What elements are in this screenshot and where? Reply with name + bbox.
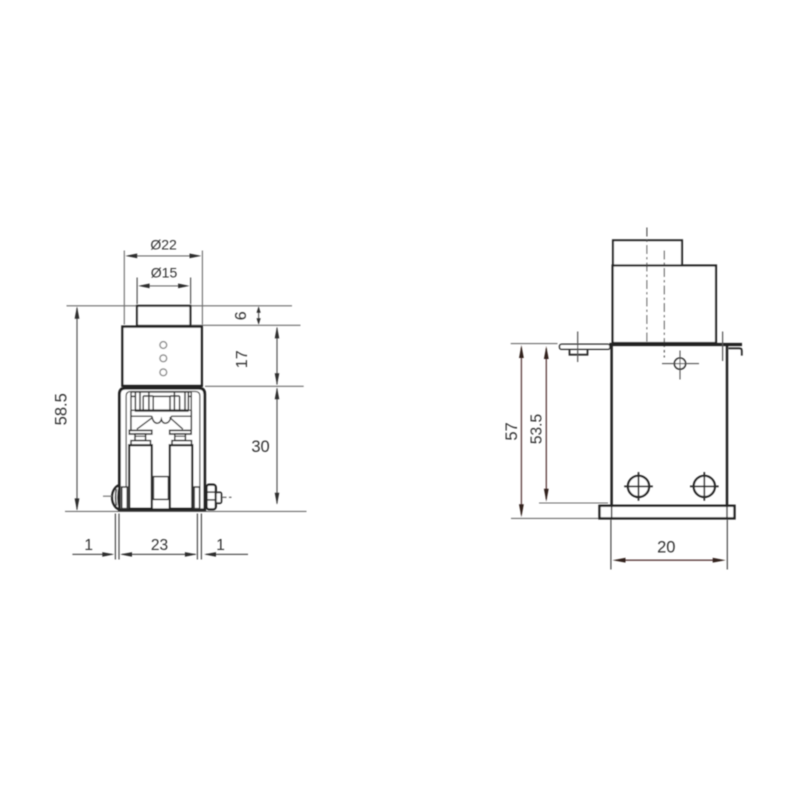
svg-text:1: 1: [216, 537, 225, 554]
svg-text:23: 23: [151, 537, 168, 554]
svg-text:Ø15: Ø15: [151, 265, 178, 281]
svg-text:Ø22: Ø22: [150, 236, 177, 252]
svg-text:1: 1: [84, 537, 93, 554]
svg-text:58.5: 58.5: [53, 393, 71, 425]
svg-text:17: 17: [234, 350, 251, 368]
svg-text:30: 30: [251, 438, 269, 456]
svg-text:53.5: 53.5: [529, 414, 546, 444]
svg-text:20: 20: [657, 539, 675, 557]
svg-text:6: 6: [233, 311, 250, 320]
svg-text:57: 57: [503, 422, 521, 440]
